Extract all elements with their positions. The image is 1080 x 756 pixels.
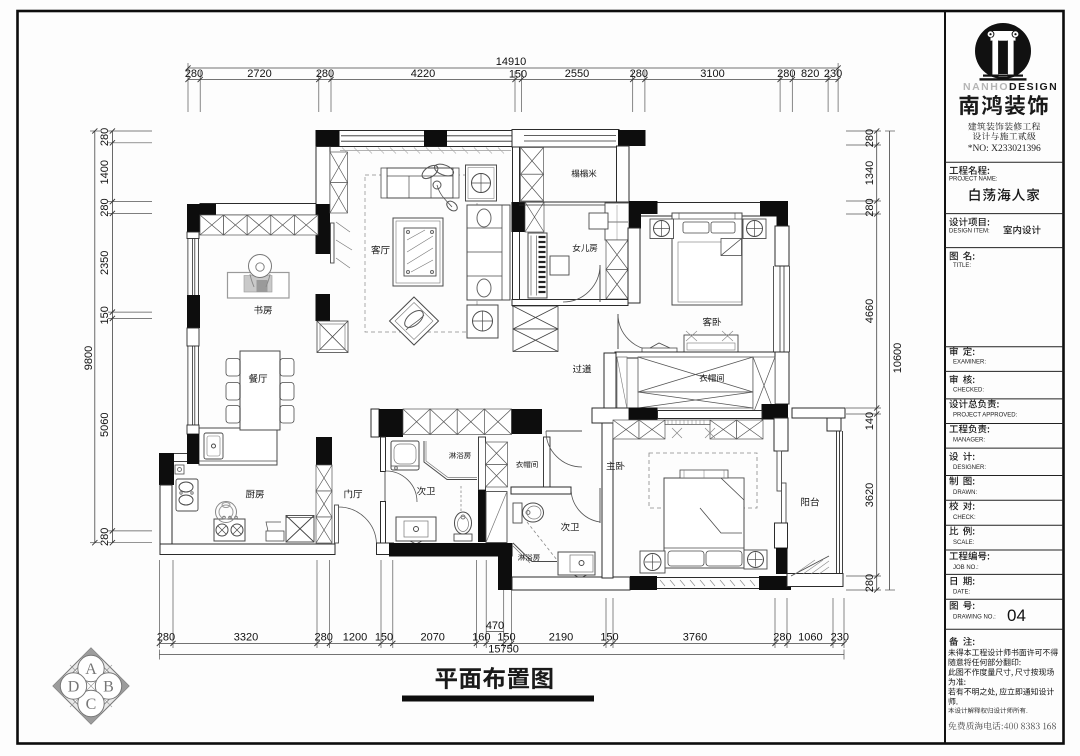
svg-text:MANAGER:: MANAGER:	[953, 438, 985, 444]
svg-text:2070: 2070	[420, 631, 444, 643]
svg-text:SCALE:: SCALE:	[953, 540, 975, 546]
svg-text:*NO: X233021396: *NO: X233021396	[968, 144, 1041, 154]
svg-text:C: C	[86, 696, 97, 713]
svg-text:2720: 2720	[247, 68, 271, 80]
svg-text:280: 280	[315, 631, 333, 643]
svg-text:160: 160	[472, 631, 490, 643]
svg-text:PROJECT NAME:: PROJECT NAME:	[949, 177, 998, 183]
svg-text:150: 150	[497, 631, 515, 643]
svg-text:280: 280	[99, 528, 111, 546]
svg-text:DRAWN:: DRAWN:	[953, 490, 977, 496]
svg-text:280: 280	[99, 128, 111, 146]
svg-text:TITLE:: TITLE:	[953, 263, 971, 269]
svg-text:280: 280	[864, 129, 876, 147]
svg-text:280: 280	[864, 574, 876, 592]
svg-text:4220: 4220	[411, 68, 435, 80]
svg-text:150: 150	[509, 68, 527, 80]
svg-text:280: 280	[185, 68, 203, 80]
svg-text:9800: 9800	[83, 346, 95, 370]
svg-text:4660: 4660	[864, 299, 876, 323]
svg-text:3100: 3100	[700, 68, 724, 80]
svg-text:A: A	[85, 661, 97, 678]
svg-text:10600: 10600	[892, 343, 904, 374]
svg-text:280: 280	[864, 198, 876, 216]
svg-text:CHECKED:: CHECKED:	[953, 388, 984, 394]
svg-text:820: 820	[801, 68, 819, 80]
svg-text:EXAMINER:: EXAMINER:	[953, 360, 986, 366]
svg-text:3760: 3760	[683, 631, 707, 643]
svg-text:3620: 3620	[864, 483, 876, 507]
svg-text:280: 280	[316, 68, 334, 80]
svg-text:DESIGN: DESIGN	[1009, 81, 1058, 93]
svg-text:1400: 1400	[99, 160, 111, 184]
svg-text:2350: 2350	[99, 251, 111, 275]
svg-text:280: 280	[773, 631, 791, 643]
svg-text:1060: 1060	[798, 631, 822, 643]
svg-text:280: 280	[630, 68, 648, 80]
svg-text:230: 230	[824, 68, 842, 80]
svg-text:3320: 3320	[234, 631, 258, 643]
svg-text:140: 140	[864, 412, 876, 430]
svg-text:150: 150	[99, 306, 111, 324]
svg-text:04: 04	[1007, 606, 1026, 625]
svg-text:5060: 5060	[99, 412, 111, 436]
svg-text:DESIGNER:: DESIGNER:	[953, 465, 986, 471]
svg-text:230: 230	[831, 631, 849, 643]
svg-text:1200: 1200	[343, 631, 367, 643]
svg-text:JOB NO.:: JOB NO.:	[953, 565, 979, 571]
svg-text:1340: 1340	[864, 161, 876, 185]
svg-text:2190: 2190	[549, 631, 573, 643]
svg-text:DESIGN ITEM:: DESIGN ITEM:	[949, 229, 990, 235]
svg-text:PROJECT APPROVED:: PROJECT APPROVED:	[953, 413, 1018, 419]
svg-text:280: 280	[157, 631, 175, 643]
svg-text:B: B	[103, 679, 114, 696]
svg-text:NANHOI: NANHOI	[963, 81, 1013, 93]
svg-text:280: 280	[777, 68, 795, 80]
svg-text:150: 150	[600, 631, 618, 643]
svg-text:14910: 14910	[496, 56, 527, 68]
svg-text:CHECK:: CHECK:	[953, 515, 976, 521]
svg-text:280: 280	[99, 198, 111, 216]
svg-text:150: 150	[375, 631, 393, 643]
svg-text:DATE:: DATE:	[953, 590, 971, 596]
svg-text:470: 470	[486, 620, 504, 632]
svg-text:D: D	[68, 679, 80, 696]
svg-text:15750: 15750	[488, 643, 519, 655]
svg-text:DRAWING NO.:: DRAWING NO.:	[953, 615, 996, 621]
svg-text:2550: 2550	[565, 68, 589, 80]
